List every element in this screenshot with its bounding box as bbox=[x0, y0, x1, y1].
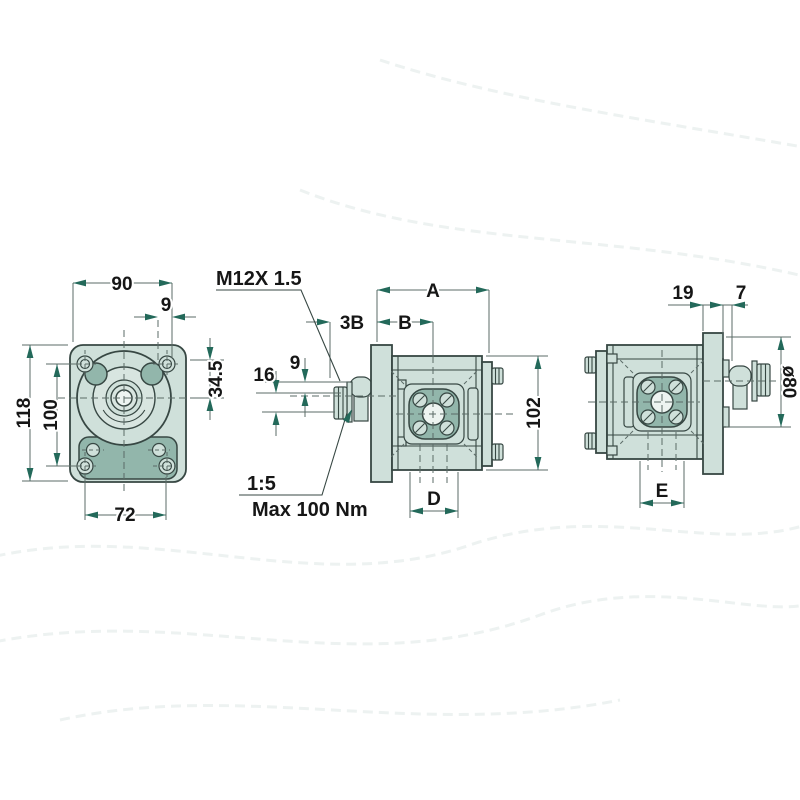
dim-E: E bbox=[640, 461, 684, 508]
dim-pilot-offset: 9 bbox=[161, 295, 172, 316]
dim-front-length: B bbox=[398, 313, 412, 334]
dim-port-spacing-side: D bbox=[427, 489, 441, 510]
taper-callout: 1:5 Max 100 Nm bbox=[239, 409, 368, 521]
drive-shaft bbox=[334, 377, 372, 422]
pilot-tab bbox=[723, 407, 729, 427]
side-flange bbox=[371, 345, 392, 482]
dim-top-width: 90 bbox=[111, 274, 132, 295]
dim-overall-length: A bbox=[426, 281, 440, 302]
dim-shaft-length: 3B bbox=[340, 313, 364, 334]
thread-label: M12X 1.5 bbox=[216, 268, 302, 290]
taper-label: 1:5 bbox=[247, 473, 276, 495]
dim-9-front: 9 bbox=[134, 295, 196, 320]
rear-flange bbox=[703, 333, 723, 474]
torque-label: Max 100 Nm bbox=[252, 499, 368, 521]
dim-flange-thickness: 19 bbox=[672, 283, 693, 304]
dim-overall-height: 118 bbox=[14, 398, 35, 429]
dim-center-height: 34.5 bbox=[206, 360, 227, 397]
shaft-nut bbox=[334, 387, 347, 419]
dim-pilot-dia: ø80 bbox=[778, 366, 799, 399]
pilot-tab bbox=[723, 360, 729, 377]
pump-dimension-drawing: 90 9 118 100 34.5 72 bbox=[0, 0, 800, 800]
dim-bolt-vertical: 100 bbox=[41, 399, 62, 431]
dim-shaft-step: 9 bbox=[290, 353, 301, 374]
dim-16: 16 bbox=[253, 365, 335, 436]
dim-D: D bbox=[410, 472, 458, 518]
rear-view bbox=[585, 333, 776, 474]
dim-pilot-depth: 7 bbox=[736, 283, 747, 304]
shaft-nut-right bbox=[757, 364, 770, 396]
dim-72: 72 bbox=[85, 477, 166, 526]
rear-bolts-right bbox=[585, 357, 596, 449]
dim-34-5: 34.5 bbox=[190, 338, 227, 420]
dim-shaft-dia: 16 bbox=[253, 365, 274, 386]
dim-body-height: 102 bbox=[524, 397, 545, 429]
drive-shaft-right bbox=[729, 361, 770, 409]
technical-drawing-canvas: 90 9 118 100 34.5 72 bbox=[0, 0, 800, 800]
thread-callout: M12X 1.5 bbox=[216, 268, 340, 381]
front-view bbox=[58, 320, 198, 494]
side-view bbox=[290, 345, 514, 483]
dim-port-spacing-rear: E bbox=[656, 481, 669, 502]
dim-bolt-horizontal: 72 bbox=[114, 505, 135, 526]
